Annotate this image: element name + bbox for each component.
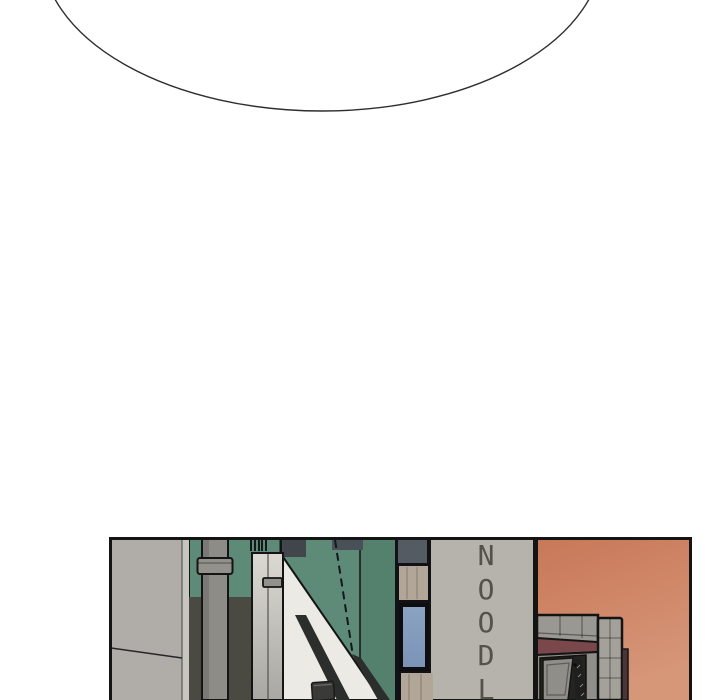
left-wall-face <box>111 539 182 700</box>
sign-letter-n: N <box>478 539 495 572</box>
left-wall <box>111 539 189 700</box>
slate-roof-block-a <box>283 539 306 557</box>
pillar-clip <box>263 578 282 587</box>
window-column <box>395 539 433 700</box>
comic-page: N O O D L <box>0 0 720 700</box>
drain-pipe <box>198 539 233 700</box>
sign-letter-d: D <box>478 639 495 672</box>
speech-bubble <box>0 0 720 140</box>
speech-bubble-ellipse <box>42 0 602 111</box>
sign-letter-o1: O <box>478 573 495 606</box>
blue-window <box>403 607 425 667</box>
comic-panel: N O O D L <box>109 537 692 700</box>
white-pillar <box>252 553 283 700</box>
noodle-sign-wall: N O O D L <box>430 539 537 700</box>
left-wall-strip <box>182 539 189 700</box>
maroon-side-strip <box>622 649 628 700</box>
pipe-coupling <box>198 558 233 574</box>
dark-bin <box>311 681 334 700</box>
door-knob <box>573 663 576 666</box>
sign-letter-l: L <box>478 673 495 700</box>
construction-structure <box>537 615 628 700</box>
sign-letter-o2: O <box>478 606 495 639</box>
tan-panel-upper <box>399 566 428 600</box>
tan-panel-lower <box>401 673 433 700</box>
slate-panel <box>398 540 427 563</box>
